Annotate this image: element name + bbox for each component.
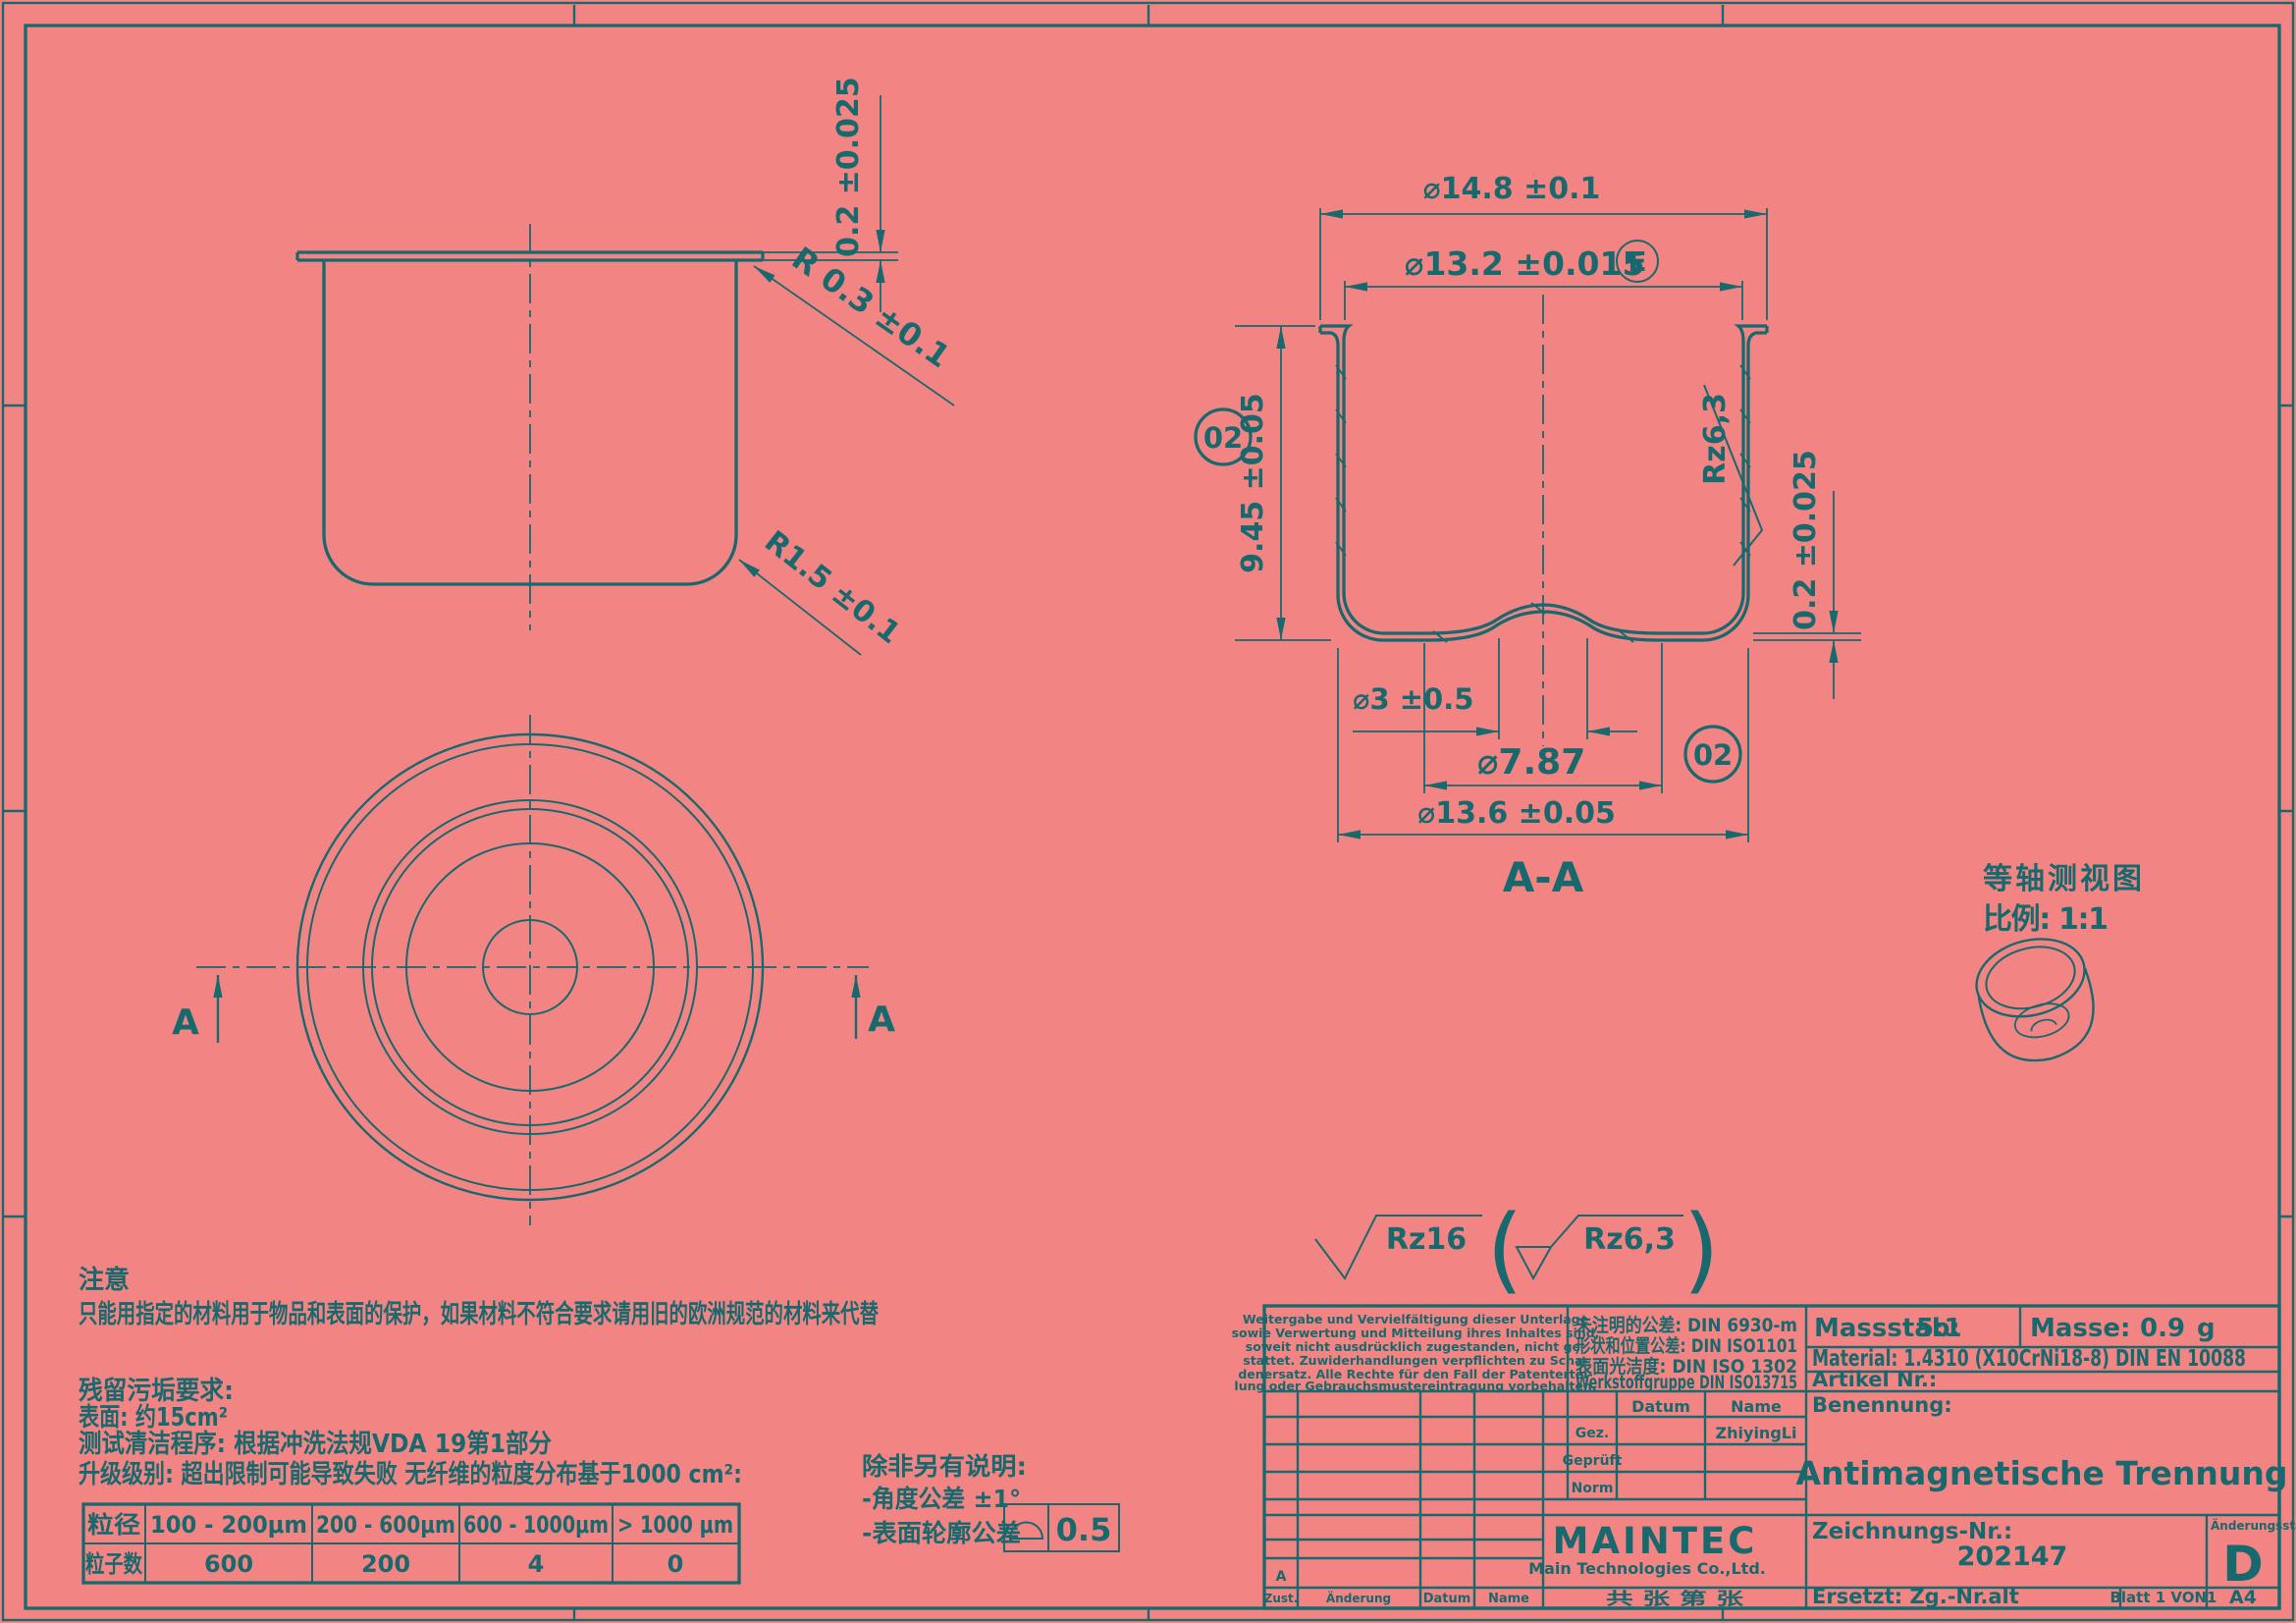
paren-close: ) (1682, 1196, 1719, 1304)
section-cut-arrows: A A (172, 975, 895, 1043)
strip-pages: 共 张 第 张 (1606, 1589, 1745, 1609)
roughness-general-label: Rz16 (1386, 1222, 1467, 1257)
balloon-left: 02 (1196, 409, 1251, 464)
dim-outer-body-label: ⌀13.6 ±0.05 (1417, 796, 1616, 831)
unless-angle-line: -角度公差 ±1° (862, 1485, 1021, 1513)
legal-line-4: stattet. Zuwiderhandlungen verpflichten … (1243, 1353, 1587, 1368)
dim-outer-body: ⌀13.6 ±0.05 (1338, 796, 1748, 835)
strip-name: Name (1488, 1592, 1529, 1606)
unless-note: 除非另有说明: -角度公差 ±1° -表面轮廓公差 0.5 (862, 1452, 1119, 1551)
note-caution-text: 只能用指定的材料用于物品和表面的保护，如果材料不符合要求请用旧的欧洲规范的材料来… (79, 1299, 879, 1329)
company-logo: MAINTEC (1553, 1520, 1758, 1562)
table-header-4: > 1000 μm (617, 1511, 733, 1539)
grid-drawn-by: ZhiyingLi (1716, 1424, 1797, 1442)
sheet-frame (3, 3, 2293, 1620)
legal-line-2: sowie Verwertung und Mitteilung ihres In… (1232, 1325, 1600, 1340)
sheet-count: Blatt 1 VON1 (2109, 1589, 2216, 1606)
dim-bottom-thickness-label: 0.2 ±0.025 (1789, 450, 1823, 630)
roughness-inner-label: Rz6,3 (1698, 393, 1733, 485)
profile-tolerance-value: 0.5 (1056, 1511, 1112, 1548)
front-view: 0.2 ±0.025 R 0.3 ±0.1 R1.5 ±0.1 (297, 77, 957, 655)
grid-norm-label: Norm (1572, 1481, 1614, 1496)
drawing-no: 202147 (1957, 1542, 2068, 1572)
dim-height: 9.45 ±0.05 (1235, 326, 1331, 640)
general-roughness-note: Rz16 ( Rz6,3 ) (1315, 1196, 1720, 1304)
tolerance-notes: 未注明的公差: DIN 6930-m 形状和位置公差: DIN ISO1101 … (1575, 1314, 1797, 1393)
grid-name-header: Name (1731, 1397, 1782, 1416)
roughness-symbol-alternative: Rz6,3 (1517, 1216, 1683, 1278)
dim-bottom-thickness: 0.2 ±0.025 (1753, 450, 1861, 699)
part-name: Antimagnetische Trennung (1795, 1454, 2287, 1492)
tolerance-line-2: 形状和位置公差: DIN ISO1101 (1575, 1334, 1797, 1357)
table-value-4: 0 (667, 1550, 684, 1578)
section-label-left: A (172, 1002, 199, 1043)
balloon-left-label: 02 (1203, 421, 1243, 455)
replaces-label: Ersetzt: Zg.-Nr.alt (1812, 1585, 2019, 1608)
engineering-drawing-sheet: 0.2 ±0.025 R 0.3 ±0.1 R1.5 ±0.1 A A (0, 0, 2296, 1623)
section-view: ⌀14.8 ±0.1 ⌀13.2 ±0.015 E 9.45 ±0.05 02 … (1196, 172, 1861, 901)
note-residue-title: 残留污垢要求: (79, 1377, 234, 1406)
revision-label: Änderungsstand (2211, 1518, 2296, 1533)
mass-unit: g (2197, 1314, 2216, 1343)
frame-tick-marks (4, 5, 2292, 1619)
dim-center-dome-label: ⌀3 ±0.5 (1353, 682, 1473, 716)
dim-corner-radius: R 0.3 ±0.1 (754, 240, 957, 406)
unless-title: 除非另有说明: (862, 1452, 1027, 1481)
dim-dome-base-label: ⌀7.87 (1477, 742, 1586, 783)
mass-label: Masse: (2030, 1314, 2130, 1343)
front-view-flange (297, 252, 763, 260)
roughness-symbol-general: Rz16 (1315, 1216, 1482, 1278)
iso-view-title: 等轴测视图 (1983, 862, 2142, 896)
tolerance-line-1: 未注明的公差: DIN 6930-m (1575, 1314, 1797, 1336)
strip-zust: Zust. (1264, 1592, 1299, 1605)
dim-inner-diameter-label: ⌀13.2 ±0.015 (1405, 244, 1645, 283)
note-grade-line: 升级级别: 超出限制可能导致失败 无纤维的粒度分布基于1000 cm²: (79, 1459, 742, 1489)
grid-revision-a: A (1276, 1569, 1287, 1585)
table-header-1: 100 - 200μm (150, 1511, 307, 1539)
profile-tolerance-frame: 0.5 (1004, 1504, 1119, 1551)
legal-line-6: lung oder Gebrauchsmustereintragung vorb… (1234, 1379, 1596, 1393)
table-size-label: 粒径 (87, 1511, 140, 1539)
envelope-symbol-label: E (1628, 245, 1646, 278)
company-name: Main Technologies Co.,Ltd. (1528, 1559, 1766, 1578)
table-header-2: 200 - 600μm (316, 1511, 455, 1539)
scale-value: 5:1 (1916, 1314, 1962, 1343)
iso-view: 等轴测视图 比例: 1:1 (1967, 862, 2142, 1073)
roughness-alternative-label: Rz6,3 (1583, 1222, 1676, 1257)
table-value-2: 200 (361, 1550, 410, 1578)
table-value-1: 600 (204, 1550, 253, 1578)
legal-notice: Weitergabe und Vervielfältigung dieser U… (1232, 1312, 1600, 1393)
dim-height-label: 9.45 ±0.05 (1236, 393, 1270, 573)
section-label: A-A (1503, 853, 1584, 901)
note-surface-line: 表面: 约15cm² (79, 1402, 228, 1433)
table-header-3: 600 - 1000μm (463, 1511, 609, 1539)
title-block: Weitergabe und Vervielfältigung dieser U… (1232, 1306, 2296, 1609)
table-value-3: 4 (528, 1550, 545, 1578)
grid-gez-label: Gez. (1575, 1426, 1609, 1441)
roughness-symbol-inner: Rz6,3 (1698, 385, 1762, 566)
strip-aenderung: Änderung (1326, 1591, 1391, 1605)
format-label: A4 (2229, 1587, 2257, 1608)
dim-flange-thickness-label: 0.2 ±0.025 (831, 77, 866, 257)
section-label-right: A (868, 1000, 895, 1040)
legal-line-3: soweit nicht ausdrücklich zugestanden, n… (1246, 1339, 1585, 1354)
balloon-bottom-label: 02 (1693, 738, 1733, 772)
dim-center-dome: ⌀3 ±0.5 (1353, 682, 1637, 731)
notes-block: 注意 只能用指定的材料用于物品和表面的保护，如果材料不符合要求请用旧的欧洲规范的… (79, 1265, 879, 1489)
note-caution-title: 注意 (79, 1265, 130, 1295)
strip-datum: Datum (1423, 1592, 1471, 1606)
revision-value: D (2222, 1536, 2264, 1593)
legal-line-1: Weitergabe und Vervielfältigung dieser U… (1243, 1312, 1588, 1326)
table-count-label: 粒子数 (85, 1550, 143, 1578)
dim-outer-flange-label: ⌀14.8 ±0.1 (1423, 172, 1601, 206)
iso-cup-drawing (1967, 927, 2107, 1072)
mass-value: 0.9 (2140, 1314, 2185, 1343)
dim-bottom-radius: R1.5 ±0.1 (739, 524, 907, 655)
grid-datum-header: Datum (1631, 1397, 1690, 1416)
tolerance-line-4: Werkstoffgruppe DIN ISO13715 (1575, 1372, 1797, 1393)
dim-dome-base: ⌀7.87 (1424, 742, 1662, 785)
grid-geprueft-label: Geprüft (1563, 1453, 1623, 1469)
balloon-bottom: 02 (1685, 727, 1740, 782)
company-block: MAINTEC Main Technologies Co.,Ltd. (1528, 1520, 1766, 1578)
note-procedure-line: 测试清洁程序: 根据冲洗法规VDA 19第1部分 (79, 1429, 552, 1459)
unless-profile-line: -表面轮廓公差 (862, 1519, 1021, 1547)
top-view: A A (172, 715, 895, 1225)
name-label: Benennung: (1812, 1393, 1952, 1417)
particle-table: 粒径 100 - 200μm 200 - 600μm 600 - 1000μm … (83, 1504, 739, 1583)
iso-view-scale: 比例: 1:1 (1983, 902, 2109, 937)
article-label: Artikel Nr.: (1812, 1368, 1937, 1391)
